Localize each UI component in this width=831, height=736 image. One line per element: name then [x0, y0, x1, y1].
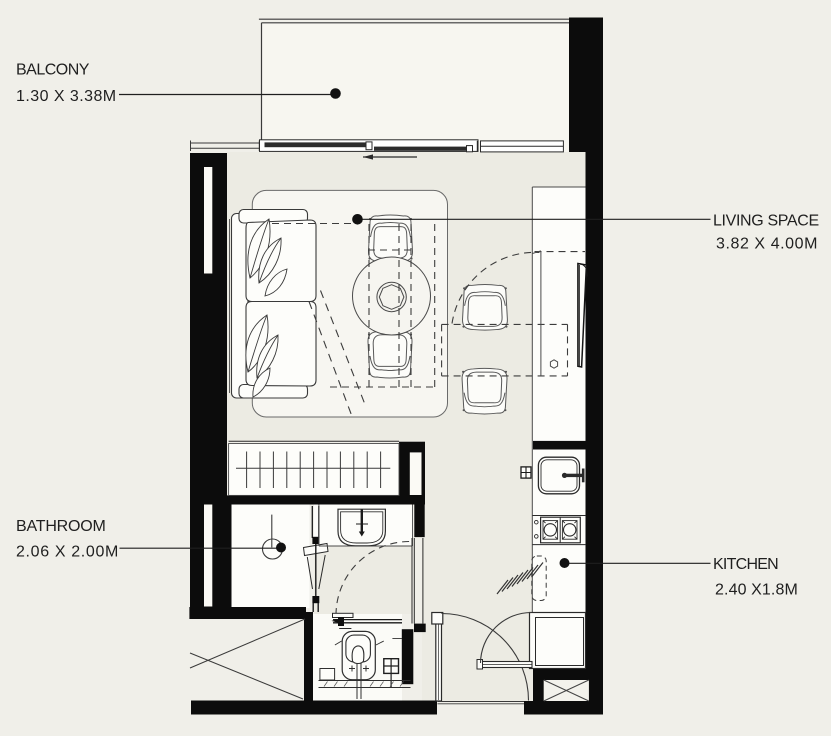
svg-text:2.06 X 2.00M: 2.06 X 2.00M: [16, 543, 119, 560]
svg-text:BATHROOM: BATHROOM: [16, 518, 106, 535]
svg-text:LIVING SPACE: LIVING SPACE: [713, 213, 819, 230]
svg-text:2.40 X1.8M: 2.40 X1.8M: [715, 582, 798, 599]
svg-text:3.82 X 4.00M: 3.82 X 4.00M: [716, 236, 818, 253]
svg-text:BALCONY: BALCONY: [16, 62, 90, 79]
svg-text:KITCHEN: KITCHEN: [713, 556, 778, 573]
svg-text:1.30 X 3.38M: 1.30 X 3.38M: [16, 88, 117, 105]
